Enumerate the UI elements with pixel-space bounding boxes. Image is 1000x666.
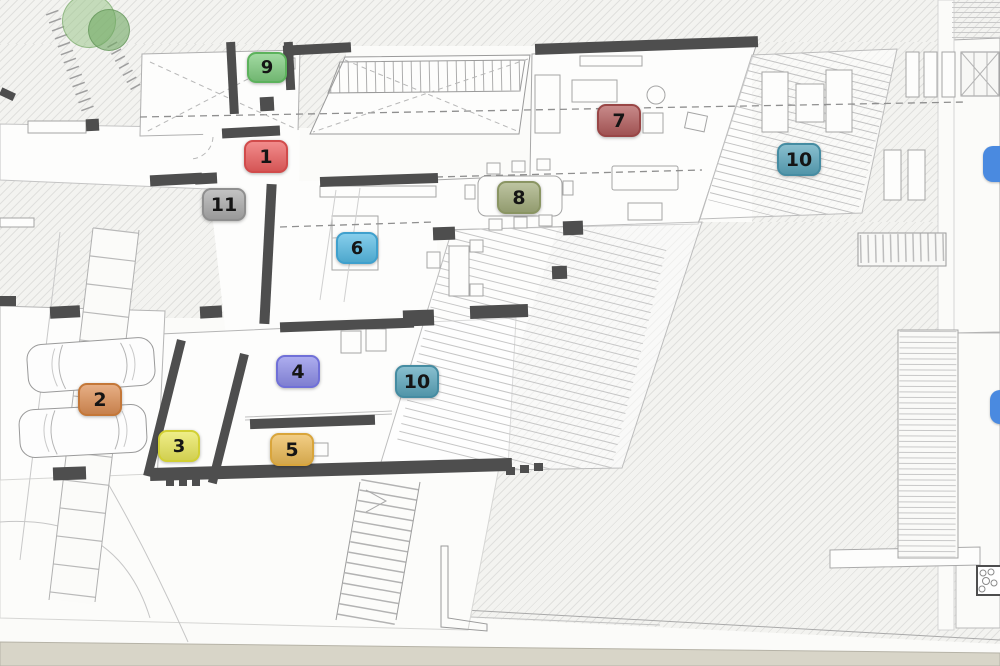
tree-canopy-2 xyxy=(88,9,130,51)
pool-marker-2[interactable] xyxy=(990,390,1000,424)
floor-plan-canvas: 123456789101011 xyxy=(0,0,1000,666)
room-marker-2[interactable]: 2 xyxy=(78,383,122,416)
room-marker-3[interactable]: 3 xyxy=(158,430,200,462)
room-marker-6[interactable]: 6 xyxy=(336,232,378,264)
room-marker-11[interactable]: 11 xyxy=(202,188,246,221)
room-marker-9[interactable]: 9 xyxy=(247,52,287,83)
room-marker-4[interactable]: 4 xyxy=(276,355,320,388)
pool-marker-1[interactable] xyxy=(983,146,1000,182)
room-marker-10[interactable]: 10 xyxy=(777,143,821,176)
room-marker-7[interactable]: 7 xyxy=(597,104,641,137)
room-marker-8[interactable]: 8 xyxy=(497,181,541,214)
plan-linework xyxy=(0,0,1000,666)
room-marker-10[interactable]: 10 xyxy=(395,365,439,398)
room-marker-5[interactable]: 5 xyxy=(270,433,314,466)
room-marker-1[interactable]: 1 xyxy=(244,140,288,173)
